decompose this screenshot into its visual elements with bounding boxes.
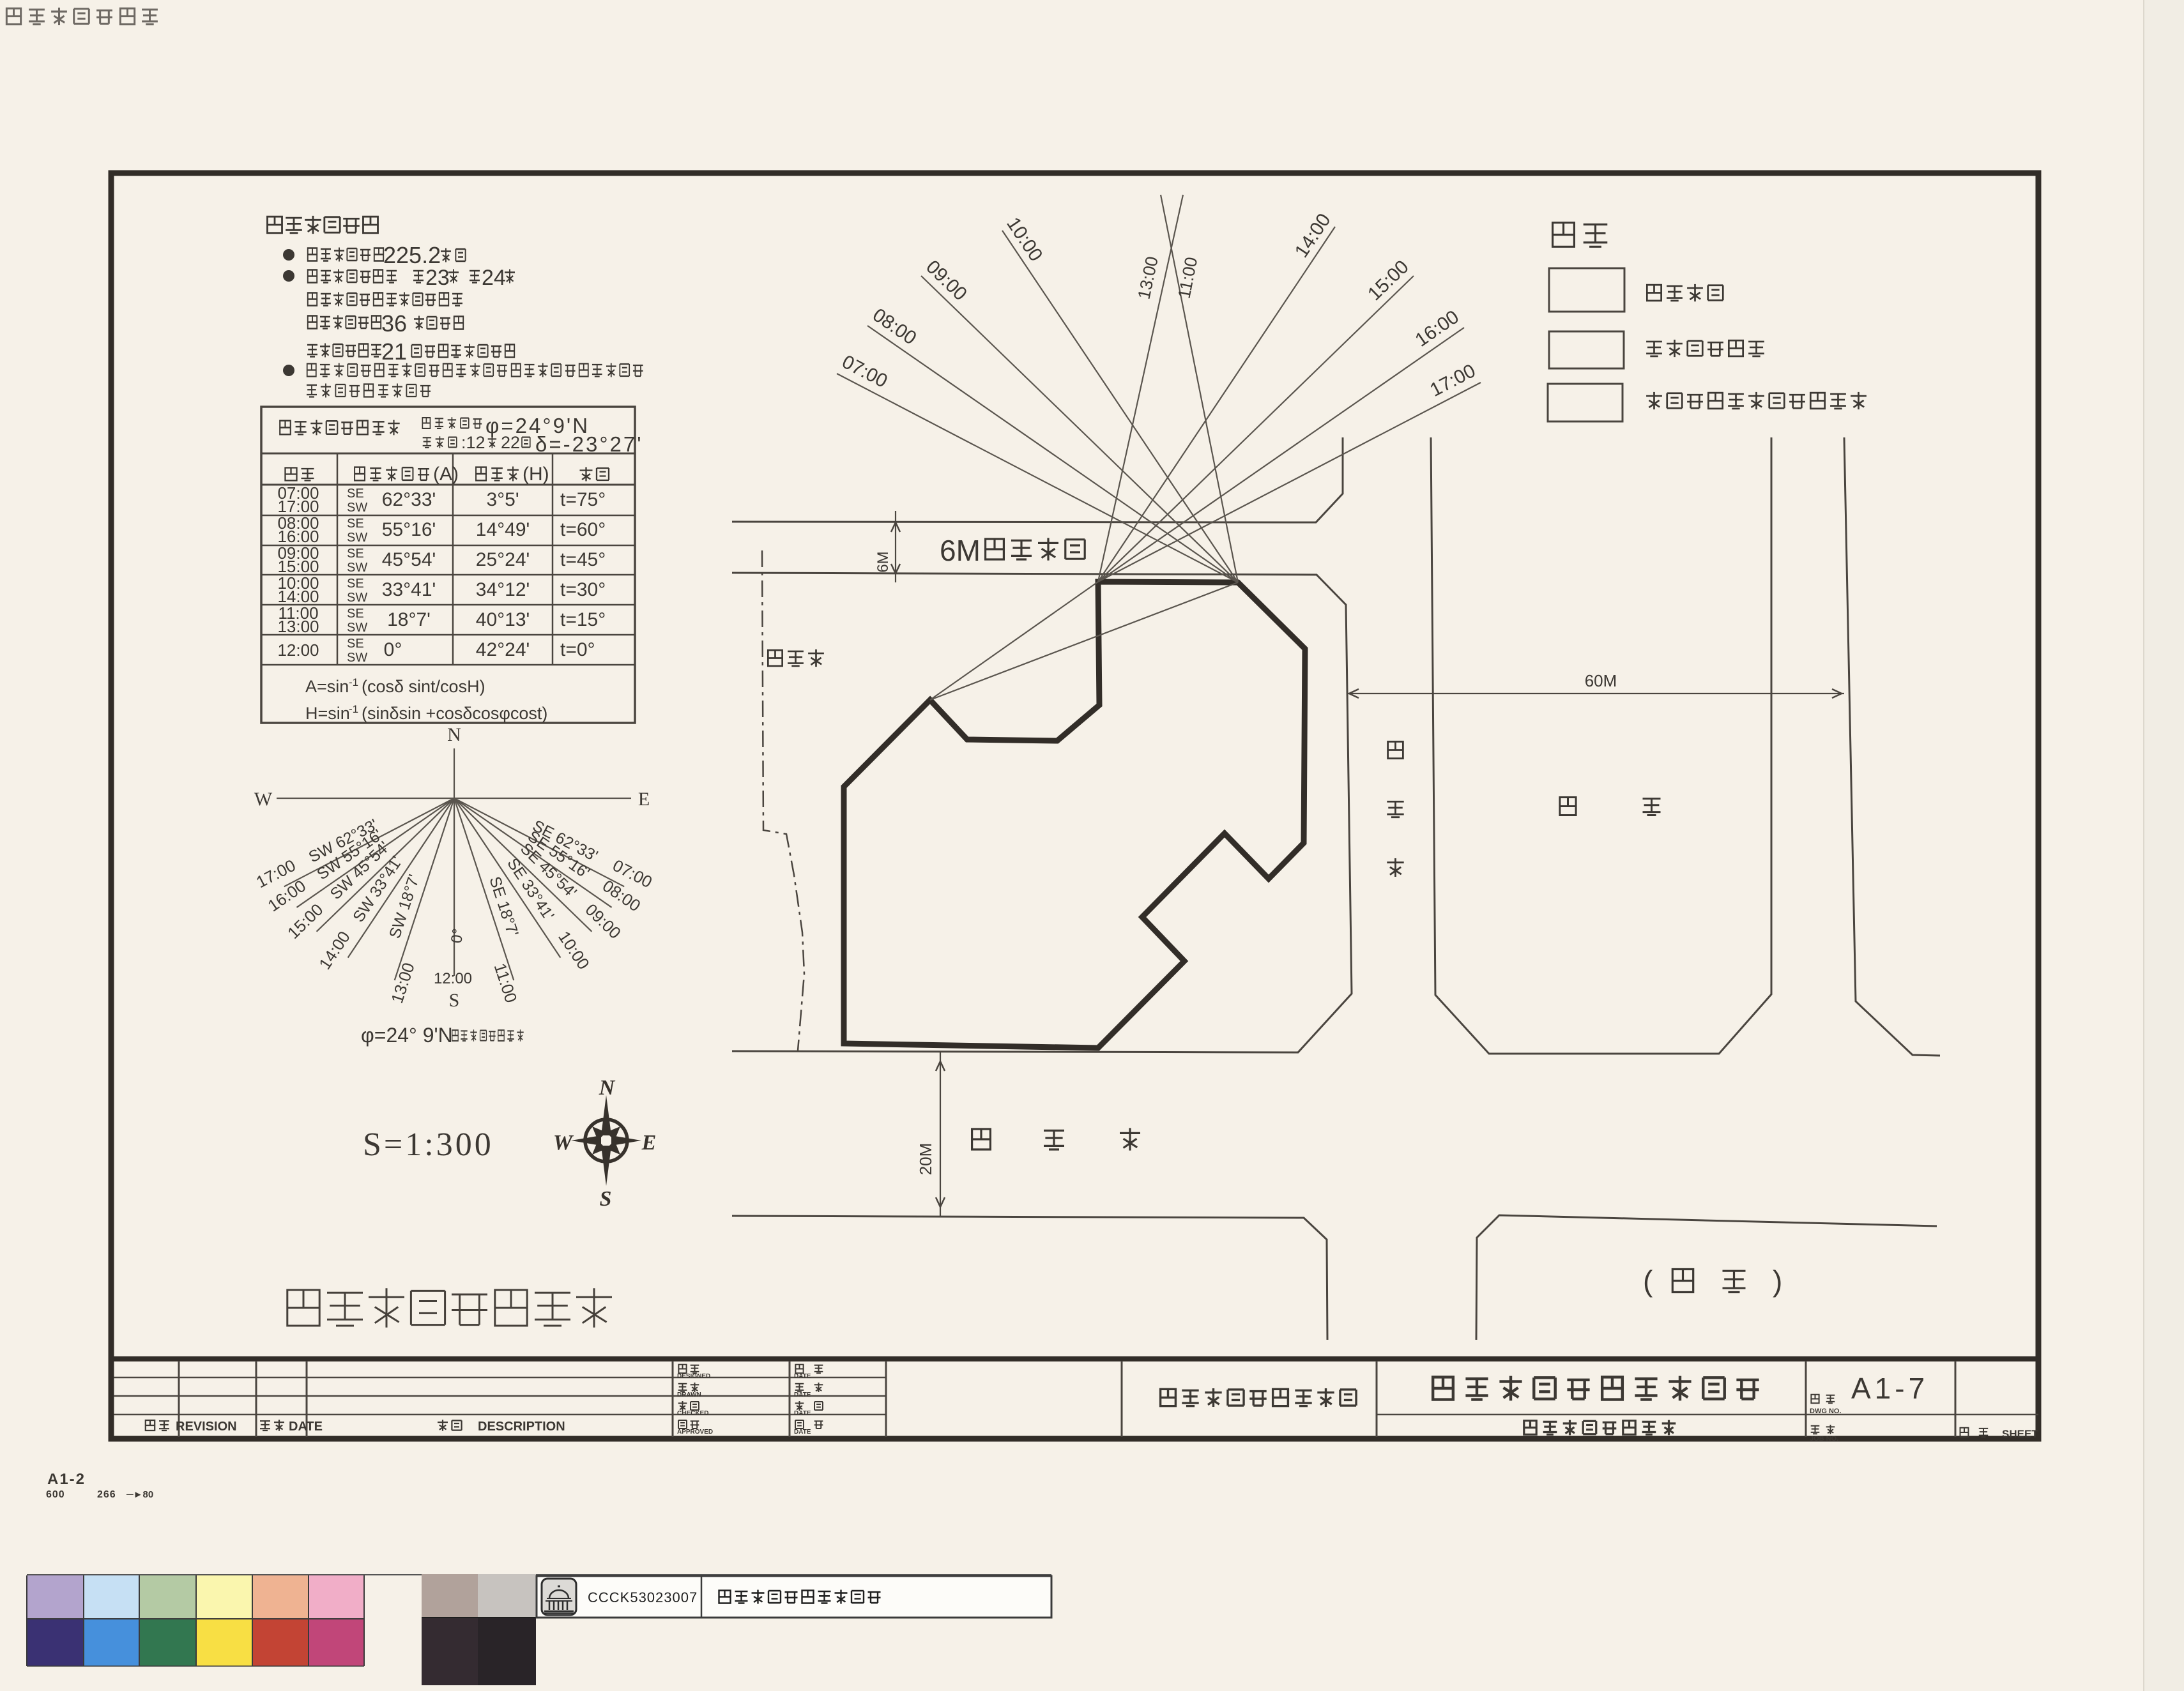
svg-text:0°: 0°	[448, 927, 467, 944]
svg-text:δ=-23°27': δ=-23°27'	[535, 432, 643, 456]
svg-text:SE: SE	[347, 547, 364, 561]
svg-text:H=sin: H=sin	[305, 704, 350, 723]
svg-text:34°12': 34°12'	[476, 579, 530, 600]
svg-text:S: S	[600, 1187, 612, 1211]
svg-text:SE: SE	[347, 577, 364, 591]
svg-text:S: S	[449, 990, 460, 1011]
svg-text:SHEET: SHEET	[2002, 1428, 2038, 1440]
svg-text:CCCK53023007: CCCK53023007	[588, 1589, 698, 1605]
svg-text:φ=24° 9'N: φ=24° 9'N	[361, 1024, 453, 1047]
svg-text:(: (	[1643, 1264, 1653, 1298]
svg-text:13:00: 13:00	[277, 617, 319, 636]
svg-text:33°41': 33°41'	[382, 579, 436, 600]
svg-text:60M: 60M	[1585, 671, 1617, 690]
svg-text:W: W	[553, 1131, 574, 1155]
svg-text:SW: SW	[347, 651, 367, 665]
svg-text:DATE: DATE	[794, 1410, 811, 1417]
svg-text:t=15°: t=15°	[560, 609, 606, 630]
svg-text:14°49': 14°49'	[476, 519, 530, 540]
svg-text:DATE: DATE	[794, 1429, 811, 1436]
svg-text:12:00: 12:00	[434, 970, 472, 987]
svg-text:0°: 0°	[384, 639, 402, 660]
svg-text:DESCRIPTION: DESCRIPTION	[478, 1420, 565, 1434]
svg-text:W: W	[254, 789, 273, 810]
svg-text:62°33': 62°33'	[382, 489, 436, 510]
svg-text:JOB NO.: JOB NO.	[1810, 1435, 1838, 1443]
svg-text:APPROVED: APPROVED	[677, 1429, 713, 1436]
svg-text:t=30°: t=30°	[560, 579, 606, 600]
svg-text:21: 21	[381, 338, 407, 365]
svg-text:t=75°: t=75°	[560, 489, 606, 510]
svg-text:600: 600	[46, 1489, 65, 1500]
svg-text:SE: SE	[347, 517, 364, 531]
svg-text:42°24': 42°24'	[476, 639, 530, 660]
svg-text:(sinδsin +cosδcosφcost): (sinδsin +cosδcosφcost)	[362, 704, 547, 723]
svg-text:t=0°: t=0°	[560, 639, 595, 660]
svg-text:225.2: 225.2	[383, 242, 441, 268]
svg-text:A=sin: A=sin	[305, 677, 349, 696]
svg-text::12: :12	[461, 433, 485, 452]
svg-text:24: 24	[482, 266, 506, 290]
svg-text:6M: 6M	[874, 551, 892, 572]
svg-text:20M: 20M	[916, 1143, 935, 1176]
svg-text:SW: SW	[347, 591, 367, 605]
svg-text:40°13': 40°13'	[476, 609, 530, 630]
svg-text:12:00: 12:00	[277, 641, 319, 660]
svg-text:3°5': 3°5'	[486, 489, 519, 510]
svg-text:45°54': 45°54'	[382, 549, 436, 570]
svg-text:SE: SE	[347, 637, 364, 651]
svg-text:-1: -1	[349, 703, 358, 715]
svg-text:E: E	[638, 789, 650, 810]
svg-text:55°16': 55°16'	[382, 519, 436, 540]
svg-text:CHECKED: CHECKED	[677, 1410, 708, 1417]
svg-text:E: E	[641, 1131, 657, 1155]
svg-text:(H): (H)	[523, 464, 549, 485]
svg-text:t=45°: t=45°	[560, 549, 606, 570]
svg-text:SE: SE	[347, 487, 364, 501]
svg-text:DATE: DATE	[794, 1391, 811, 1399]
svg-text:A1-2: A1-2	[47, 1471, 86, 1488]
svg-text:A1-7: A1-7	[1851, 1372, 1928, 1405]
svg-text:DATE: DATE	[289, 1420, 323, 1434]
svg-text:SW: SW	[347, 621, 367, 635]
svg-text:23: 23	[425, 266, 450, 290]
svg-text:22: 22	[501, 433, 520, 452]
svg-text:): )	[1773, 1264, 1782, 1298]
svg-text:SW: SW	[347, 531, 367, 545]
svg-text:DESIGNED: DESIGNED	[677, 1373, 710, 1380]
svg-text:REVISION: REVISION	[176, 1420, 237, 1434]
svg-text:t=60°: t=60°	[560, 519, 606, 540]
svg-text:18°7': 18°7'	[387, 609, 431, 630]
svg-text:N: N	[447, 724, 461, 745]
svg-text:DWG NO.: DWG NO.	[1810, 1407, 1842, 1415]
svg-text:(A): (A)	[433, 464, 459, 485]
svg-text:6M: 6M	[940, 534, 981, 567]
svg-text:36: 36	[381, 310, 407, 337]
svg-text:266: 266	[97, 1489, 116, 1500]
svg-text:(cosδ sint/cosH): (cosδ sint/cosH)	[362, 677, 485, 696]
svg-text:25°24': 25°24'	[476, 549, 530, 570]
svg-text:N: N	[599, 1076, 616, 1100]
svg-text:DATE: DATE	[794, 1373, 811, 1380]
svg-text:S=1:300: S=1:300	[363, 1126, 494, 1163]
svg-text:-1: -1	[349, 676, 358, 688]
svg-text:SW: SW	[347, 561, 367, 575]
svg-text:SW: SW	[347, 501, 367, 515]
svg-text:SE: SE	[347, 607, 364, 621]
svg-text:DRAWN: DRAWN	[677, 1391, 701, 1399]
svg-text:─►80: ─►80	[126, 1489, 153, 1500]
